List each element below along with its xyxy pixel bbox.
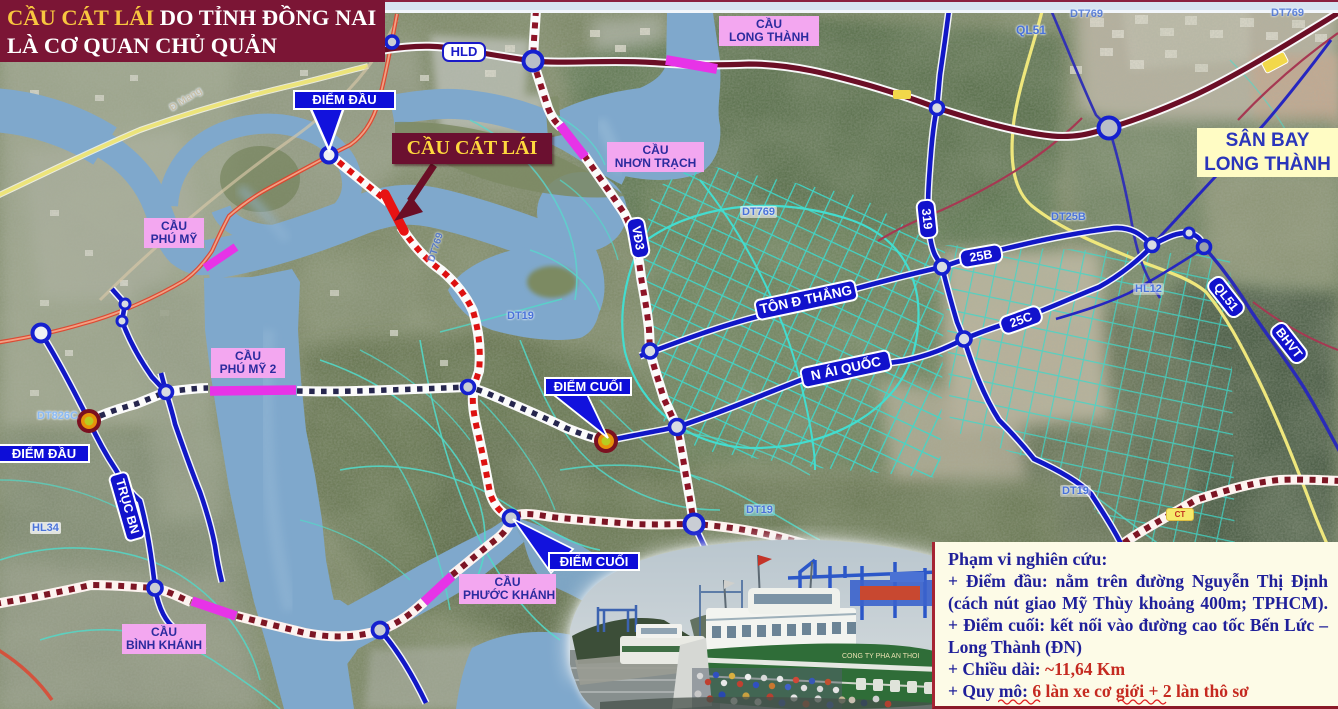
svg-text:CONG TY PHA AN THOI: CONG TY PHA AN THOI — [842, 653, 919, 660]
